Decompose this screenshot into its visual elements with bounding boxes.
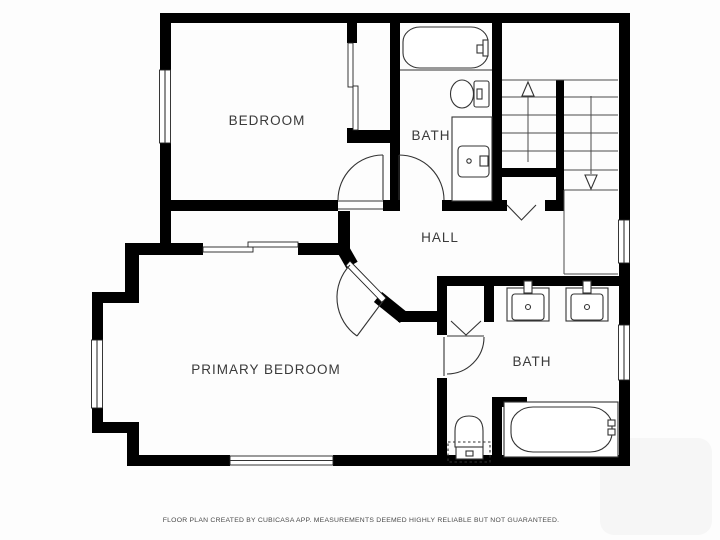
wall-left-step3 [92,408,103,422]
primary-bedroom-label: PRIMARY BEDROOM [191,362,341,377]
bathtub-icon [504,402,618,457]
double-vanity-sink-left-icon [507,281,549,321]
wall-right-mid [619,263,630,325]
wall-sink [437,276,630,286]
wall-left-jog-in [92,422,139,433]
lower-bath-fixtures [448,281,618,462]
wall-right-upper [619,13,630,220]
wall-left-bedroom-lower [160,143,171,255]
wall-vestibule-right [484,286,494,322]
lower-bath-door [444,336,484,376]
opening-chevron-bath [451,321,481,335]
upper-bath-fixtures [400,27,492,201]
bathtub-icon [400,27,492,70]
hall-label: HALL [421,230,459,245]
window-primary-left [92,340,103,408]
wall-left-step4 [127,433,139,457]
opening-chevron-stairs [507,205,536,220]
window-stairs-right [619,220,630,263]
primary-bedroom-door [337,261,386,336]
toilet-icon [451,80,490,108]
wall-left-bedroom-upper [160,13,171,70]
window-primary-bottom [230,456,333,465]
wall-top [160,13,630,23]
stairs-down-arrow-icon [585,96,597,189]
bedroom-label: BEDROOM [229,113,306,128]
window-bath-right [619,325,630,380]
wall-lower-bath-left [437,378,447,457]
walls [92,13,630,466]
wall-right-lower [619,380,630,457]
wall-closet-top-chunk [347,23,357,43]
primary-closet-sliding-door [203,242,298,252]
wall-stairs-flight [502,168,556,177]
wall-left-step2 [92,303,103,340]
floor-plan: BEDROOM BATH HALL PRIMARY BEDROOM BATH F… [0,0,720,540]
stairs-up-arrow-icon [522,82,534,162]
wall-bedroom-bottom [171,200,338,211]
upper-bath-door [399,155,444,200]
disclaimer-text: FLOOR PLAN CREATED BY CUBICASA APP. MEAS… [163,517,560,524]
upper-bath-label: BATH [411,128,450,143]
window-bedroom-left [160,70,171,143]
vanity-sink-icon [452,117,492,201]
floor-plan-drawing: BEDROOM BATH HALL PRIMARY BEDROOM BATH F… [0,0,720,540]
wall-closet-end-stub [338,211,350,244]
bedroom-door [338,155,383,209]
bedroom-closet-sliding-door [348,43,358,130]
wall-stairs-middle [556,80,564,211]
double-vanity-sink-right-icon [566,281,608,321]
wall-left-jog-out [92,292,139,303]
lower-bath-label: BATH [512,354,551,369]
wall-bottom-left [127,455,230,466]
wall-bath-stairs [492,23,502,211]
wall-vestibule-left [437,286,447,335]
